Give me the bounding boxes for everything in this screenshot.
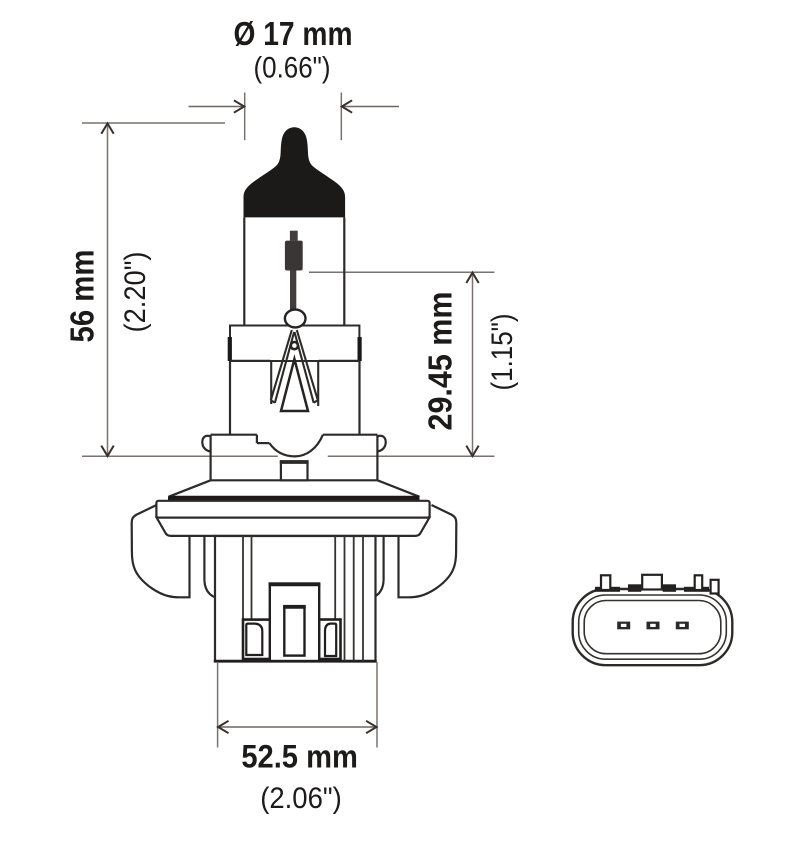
svg-text:(1.15"): (1.15") (486, 314, 519, 391)
svg-text:(2.20"): (2.20") (119, 252, 152, 333)
svg-text:(0.66"): (0.66") (254, 52, 331, 85)
svg-text:52.5 mm: 52.5 mm (241, 738, 358, 774)
svg-text:29.45 mm: 29.45 mm (422, 292, 459, 431)
svg-text:(2.06"): (2.06") (260, 782, 342, 815)
svg-text:Ø 17 mm: Ø 17 mm (234, 15, 353, 52)
svg-text:56 mm: 56 mm (64, 250, 101, 343)
